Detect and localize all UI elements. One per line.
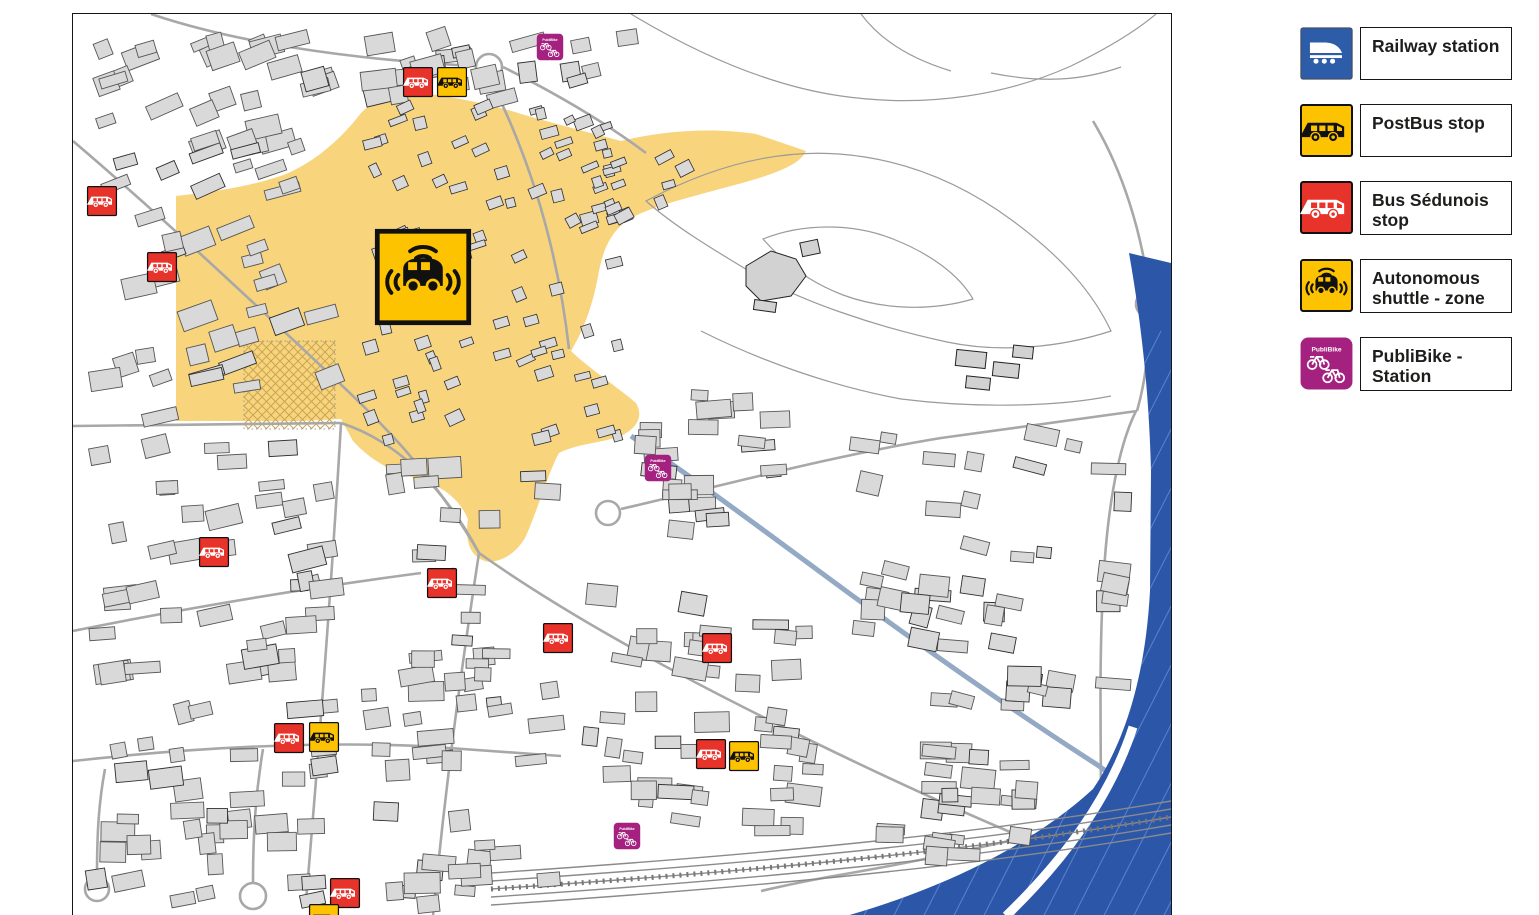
legend-item-publibike: PubliBikePubliBike - Station [1300, 337, 1522, 391]
svg-text:PubliBike: PubliBike [650, 459, 665, 463]
bus-sedunois-stop-marker [330, 879, 359, 908]
postbus-stop-marker [729, 742, 758, 771]
bus-sedunois-stop-marker [403, 68, 432, 97]
bus-sedunois-stop-marker [427, 569, 456, 598]
train-icon [1300, 27, 1353, 80]
bus-icon [1300, 181, 1353, 234]
legend: Railway stationPostBus stopBus Sédunois … [1300, 27, 1522, 415]
bus-sedunois-stop-marker [199, 538, 228, 567]
bus-sedunois-stop-marker [702, 634, 731, 663]
publibike-station-marker: PubliBike [537, 34, 563, 60]
svg-text:PubliBike: PubliBike [542, 38, 557, 42]
bus-sedunois-stop-marker [87, 187, 116, 216]
svg-text:PubliBike: PubliBike [1311, 346, 1341, 353]
legend-item-bus_sedunois: Bus Sédunois stop [1300, 181, 1522, 235]
bus-sedunois-stop-marker [543, 624, 572, 653]
legend-item-shuttle: Autonomous shuttle - zone [1300, 259, 1522, 313]
postbus-stop-marker [309, 905, 338, 915]
autonomous-shuttle-zone-icon [377, 231, 468, 322]
legend-item-postbus: PostBus stop [1300, 104, 1522, 157]
bus-sedunois-stop-marker [147, 253, 176, 282]
legend-label-shuttle: Autonomous shuttle - zone [1360, 259, 1512, 313]
city-map: PubliBikePubliBikePubliBike [72, 13, 1172, 915]
legend-label-publibike: PubliBike - Station [1360, 337, 1512, 391]
legend-item-railway: Railway station [1300, 27, 1522, 80]
legend-label-bus_sedunois: Bus Sédunois stop [1360, 181, 1512, 235]
shuttle-icon [1300, 259, 1353, 312]
postbus-icon [1300, 104, 1353, 157]
bus-sedunois-stop-marker [696, 740, 725, 769]
publibike-station-marker: PubliBike [614, 823, 640, 849]
page: PubliBikePubliBikePubliBike Railway stat… [0, 0, 1539, 915]
publibike-station-marker: PubliBike [645, 455, 671, 481]
legend-label-postbus: PostBus stop [1360, 104, 1512, 157]
postbus-stop-marker [437, 68, 466, 97]
postbus-stop-marker [309, 723, 338, 752]
bus-sedunois-stop-marker [274, 724, 303, 753]
legend-label-railway: Railway station [1360, 27, 1512, 80]
publibike-icon: PubliBike [1300, 337, 1353, 390]
svg-text:PubliBike: PubliBike [619, 827, 634, 831]
